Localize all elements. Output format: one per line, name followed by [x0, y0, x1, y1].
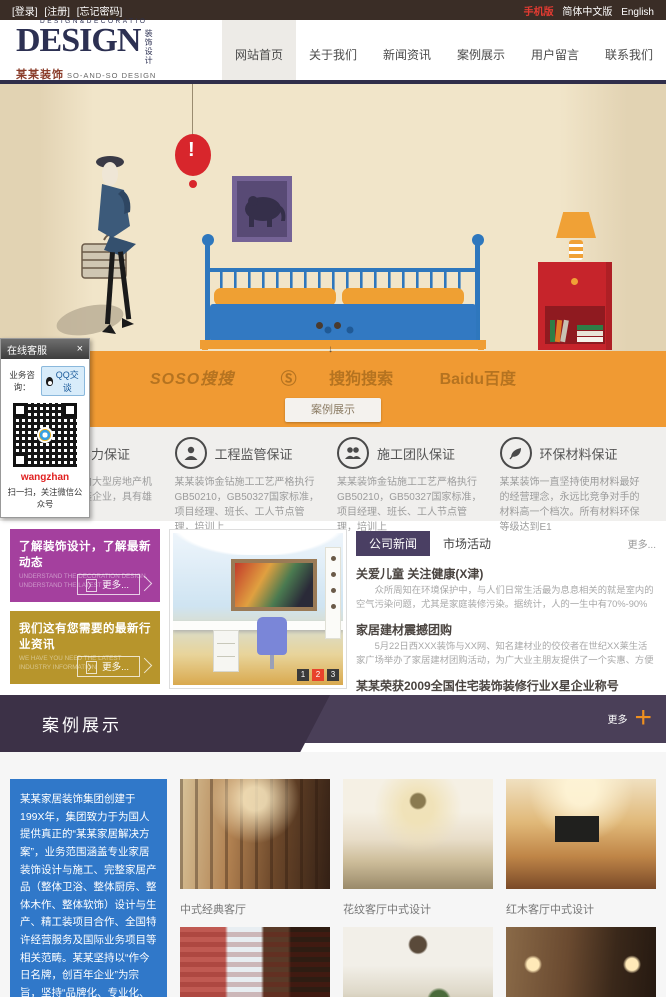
- search-engines-strip: SOSO搜搜 Ⓢ 搜狗搜索 Baidu百度 案例展示: [0, 351, 666, 427]
- logo-text-block: DESIGN&DECORATIO DESIGN 装饰设计 某某装饰SO-AND-…: [16, 18, 179, 82]
- company-intro-block: 某某家居装饰集团创建于199X年，集团致力于为国人提供真正的“某某家居解决方案”…: [10, 779, 167, 997]
- site-header: DESIGN&DECORATIO DESIGN 装饰设计 某某装饰SO-AND-…: [0, 20, 666, 84]
- logo-company-name: 某某装饰: [16, 69, 64, 81]
- mobile-version-link[interactable]: 手机版: [524, 7, 554, 18]
- feature-eco: 环保材料保证 某某装饰一直坚持使用材料最好的经营理念，永远比竞争对手的材料高一个…: [496, 437, 659, 521]
- nav-item-messages[interactable]: 用户留言: [518, 20, 592, 80]
- news-title[interactable]: 家居建材震撼团购: [356, 621, 656, 638]
- account-links: [登录] [注册] [忘记密码]: [12, 3, 126, 18]
- language-links: 手机版 简体中文版 English: [518, 3, 654, 18]
- chevron-icon: 〉: [86, 661, 97, 674]
- site-logo[interactable]: DESIGN&DECORATIO DESIGN 装饰设计 某某装饰SO-AND-…: [16, 20, 179, 80]
- logo-subtitle-row: 某某装饰SO-AND-SO DESIGN: [16, 66, 179, 82]
- simplified-chinese-link[interactable]: 简体中文版: [562, 7, 612, 18]
- qr-account-name: wangzhan: [5, 472, 85, 483]
- carousel-page-2[interactable]: 2: [312, 669, 324, 681]
- main-nav: 网站首页 关于我们 新闻资讯 案例展示 用户留言 联系我们: [222, 20, 666, 80]
- online-service-panel: 在线客服 × 业务咨询： QQ交谈 wangzhan 扫一扫，关注微信公众号: [0, 338, 90, 518]
- case-caption[interactable]: 花纹客厅中式设计: [343, 889, 493, 927]
- plus-icon: +: [634, 703, 652, 733]
- promo-more-button[interactable]: 〉更多...: [77, 574, 140, 595]
- sogou-s-icon: Ⓢ: [281, 365, 297, 389]
- red-lantern: !: [175, 134, 211, 176]
- middle-section: 了解装饰设计，了解最新动态 UNDERSTAND THE DECORATION …: [0, 521, 666, 689]
- case-photo-pattern-living-room[interactable]: [343, 779, 493, 889]
- service-panel-header: 在线客服 ×: [1, 339, 89, 359]
- logo-vertical-text: 装饰设计: [143, 29, 152, 65]
- promo-title: 我们这有您需要的最新行业资讯: [19, 620, 151, 652]
- nav-item-home[interactable]: 网站首页: [222, 20, 296, 80]
- lantern-tail: [189, 180, 197, 188]
- feature-body: 某某装饰一直坚持使用材料最好的经营理念，永远比竞争对手的材料高一个档次。所有材料…: [500, 475, 649, 535]
- cases-section-header: 案例展示 更多 +: [0, 695, 666, 752]
- news-item: 家居建材震撼团购 5月22日西XXX装饰与XX网、知名建材业的佼佼者在世纪XX莱…: [356, 621, 656, 668]
- news-title[interactable]: 某某荣获2009全国住宅装饰装修行业X星企业称号: [356, 677, 656, 694]
- chevron-icon: 〉: [86, 579, 97, 592]
- nav-item-contact[interactable]: 联系我们: [592, 20, 666, 80]
- news-body: 5月22日西XXX装饰与XX网、知名建材业的佼佼者在世纪XX莱生活家广场举办了家…: [356, 640, 656, 668]
- consult-label: 业务咨询：: [5, 369, 39, 393]
- baidu-logo[interactable]: Baidu百度: [440, 371, 516, 388]
- bed-illustration: [200, 232, 486, 350]
- logo-main-text: DESIGN: [16, 25, 140, 65]
- qq-chat-button[interactable]: QQ交谈: [41, 366, 85, 396]
- feature-title: 工程监管保证: [215, 444, 293, 463]
- news-more-link[interactable]: 更多...: [628, 536, 656, 551]
- soso-logo[interactable]: SOSO搜搜: [150, 371, 234, 388]
- promo-banners: 了解装饰设计，了解最新动态 UNDERSTAND THE DECORATION …: [10, 529, 160, 689]
- close-icon[interactable]: ×: [77, 343, 83, 355]
- case-caption[interactable]: 红木客厅中式设计: [506, 889, 656, 927]
- top-bar: [登录] [注册] [忘记密码] 手机版 简体中文版 English: [0, 0, 666, 20]
- case-photo-redwood-living-room[interactable]: [506, 779, 656, 889]
- service-panel-title: 在线客服: [7, 342, 47, 357]
- lantern-string: [192, 84, 193, 136]
- photo-carousel[interactable]: 1 2 3: [169, 529, 347, 689]
- hero-banner: !: [0, 84, 666, 351]
- cases-more-link[interactable]: 更多 +: [607, 703, 652, 733]
- news-tabs: 公司新闻 市场活动 更多...: [356, 531, 656, 556]
- feature-body: 某某装饰金钻施工工艺严格执行GB50210，GB50327国家标准，项目经理、班…: [337, 475, 486, 535]
- case-photo-bright-living-room[interactable]: [343, 927, 493, 997]
- feature-title: 施工团队保证: [377, 444, 455, 463]
- tab-market-activities[interactable]: 市场活动: [430, 531, 504, 556]
- news-section: 公司新闻 市场活动 更多... 关爱儿童 关注健康(X津) 众所周知在环境保护中…: [356, 529, 656, 689]
- study-room-photo: [173, 533, 343, 685]
- case-gallery: 某某家居装饰集团创建于199X年，集团致力于为国人提供真正的“某某家居解决方案”…: [0, 752, 666, 997]
- forgot-password-link[interactable]: [忘记密码]: [77, 7, 123, 18]
- search-engine-logos: SOSO搜搜 Ⓢ 搜狗搜索 Baidu百度: [0, 351, 666, 389]
- nav-item-about[interactable]: 关于我们: [296, 20, 370, 80]
- case-caption[interactable]: 中式经典客厅: [180, 889, 330, 927]
- tab-company-news[interactable]: 公司新闻: [356, 531, 430, 556]
- case-photo-classic-living-room[interactable]: [180, 779, 330, 889]
- english-link[interactable]: English: [621, 7, 654, 18]
- hero-slider-dot-2[interactable]: [334, 322, 341, 329]
- sogou-logo[interactable]: Ⓢ 搜狗搜索: [267, 371, 407, 388]
- feature-body: 某某装饰金钻施工工艺严格执行GB50210，GB50327国家标准，项目经理、班…: [175, 475, 324, 535]
- person-icon: [175, 437, 207, 469]
- promo-more-button[interactable]: 〉更多...: [77, 656, 140, 677]
- promo-title: 了解装饰设计，了解最新动态: [19, 538, 151, 570]
- qr-scan-note: 扫一扫，关注微信公众号: [5, 486, 85, 513]
- lamp-base: [569, 240, 583, 260]
- nightstand: [538, 262, 612, 350]
- case-photo-red-chinese-room[interactable]: [180, 927, 330, 997]
- feature-title: 环保材料保证: [540, 444, 618, 463]
- hero-slider-dot-1[interactable]: [316, 322, 323, 329]
- nav-item-news[interactable]: 新闻资讯: [370, 20, 444, 80]
- register-link[interactable]: [注册]: [44, 7, 70, 18]
- case-display-button[interactable]: 案例展示: [285, 398, 381, 422]
- news-item: 关爱儿童 关注健康(X津) 众所周知在环境保护中，与人们日常生活最为息息相关的就…: [356, 565, 656, 612]
- wechat-qr-code: [13, 403, 77, 467]
- promo-industry-news[interactable]: 我们这有您需要的最新行业资讯 WE HAVE YOU NEED THE LATE…: [10, 611, 160, 684]
- guarantee-section: 公司实力保证 某某装饰是由国内大型房地产机构投资的大型家装企业，具有雄厚的经济实…: [0, 427, 666, 521]
- logo-company-en: SO-AND-SO DESIGN: [67, 71, 156, 80]
- cases-section-title: 案例展示: [0, 695, 330, 752]
- scroll-down-arrow[interactable]: ↓: [328, 344, 333, 997]
- leaf-icon: [500, 437, 532, 469]
- login-link[interactable]: [登录]: [12, 7, 38, 18]
- feature-team: 施工团队保证 某某装饰金钻施工工艺严格执行GB50210，GB50327国家标准…: [333, 437, 496, 521]
- fashion-lady-illustration: [52, 152, 162, 351]
- qr-center-logo: [37, 427, 53, 443]
- carousel-page-1[interactable]: 1: [297, 669, 309, 681]
- service-panel-body: 业务咨询： QQ交谈 wangzhan 扫一扫，关注微信公众号: [1, 359, 89, 517]
- team-icon: [337, 437, 369, 469]
- company-intro-text: 某某家居装饰集团创建于199X年，集团致力于为国人提供真正的“某某家居解决方案”…: [20, 793, 157, 997]
- nav-item-cases[interactable]: 案例展示: [444, 20, 518, 80]
- news-title[interactable]: 关爱儿童 关注健康(X津): [356, 565, 656, 582]
- promo-design-news[interactable]: 了解装饰设计，了解最新动态 UNDERSTAND THE DECORATION …: [10, 529, 160, 602]
- news-body: 众所周知在环境保护中，与人们日常生活最为息息相关的就是室内的空气污染问题，尤其是…: [356, 584, 656, 612]
- qq-penguin-icon: [46, 377, 52, 386]
- case-photo-wood-bedroom[interactable]: [506, 927, 656, 997]
- feature-supervision: 工程监管保证 某某装饰金钻施工工艺严格执行GB50210，GB50327国家标准…: [171, 437, 334, 521]
